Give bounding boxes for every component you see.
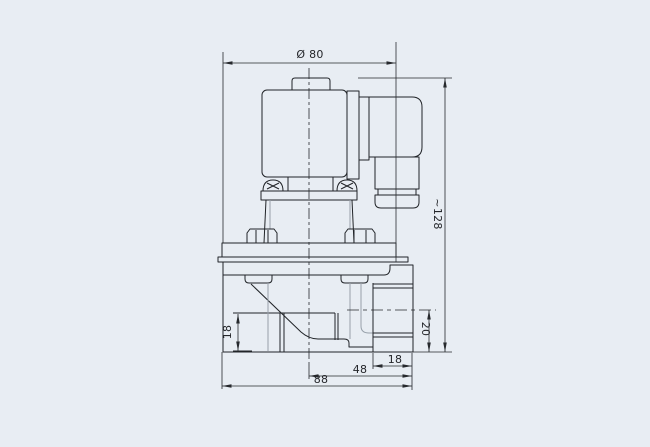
- cable-gland-cap: [375, 195, 419, 208]
- coil-side-plate: [347, 91, 359, 179]
- din-connector-lower: [375, 157, 419, 189]
- diaphragm-plate: [218, 257, 408, 262]
- right-hex-nut: [345, 229, 375, 243]
- inlet-port-lines: [233, 313, 338, 352]
- din-connector-body: [369, 97, 422, 157]
- label-overall-width: 88: [314, 373, 329, 386]
- label-coil-diameter: Ø 80: [296, 48, 323, 61]
- stud-bolts: [270, 200, 350, 229]
- dim-overall-width: 88: [222, 352, 412, 389]
- armature-step: [288, 177, 333, 191]
- right-screw-cross-icon: [341, 183, 353, 189]
- left-hex-nut: [247, 229, 277, 243]
- internal-passage: [251, 284, 373, 347]
- left-recess: [245, 275, 272, 283]
- dim-outlet-width: 18: [373, 353, 412, 390]
- drawing-canvas: Ø 80 ~128 18 20 18 48: [0, 0, 650, 447]
- left-screw-cross-icon: [267, 183, 279, 189]
- label-inlet-height: 18: [221, 325, 234, 340]
- valve-outline: [218, 78, 422, 352]
- dim-overall-height: ~128: [358, 78, 452, 352]
- label-outlet-width: 18: [388, 353, 403, 366]
- coil-body: [262, 90, 347, 177]
- valve-dimension-drawing: Ø 80 ~128 18 20 18 48: [0, 0, 650, 447]
- dim-coil-diameter: Ø 80: [223, 48, 396, 243]
- label-outlet-height: 20: [419, 322, 432, 337]
- label-center-to-outlet: 48: [353, 363, 368, 376]
- outlet-port-lines: [373, 283, 413, 352]
- cable-gland-ring: [378, 189, 416, 195]
- coil-top-knob: [292, 78, 330, 90]
- dim-outlet-height: 20: [419, 310, 432, 352]
- connector-neck: [359, 97, 369, 160]
- right-recess: [341, 275, 368, 283]
- dim-inlet-height: 18: [221, 314, 238, 351]
- label-overall-height: ~128: [431, 198, 444, 229]
